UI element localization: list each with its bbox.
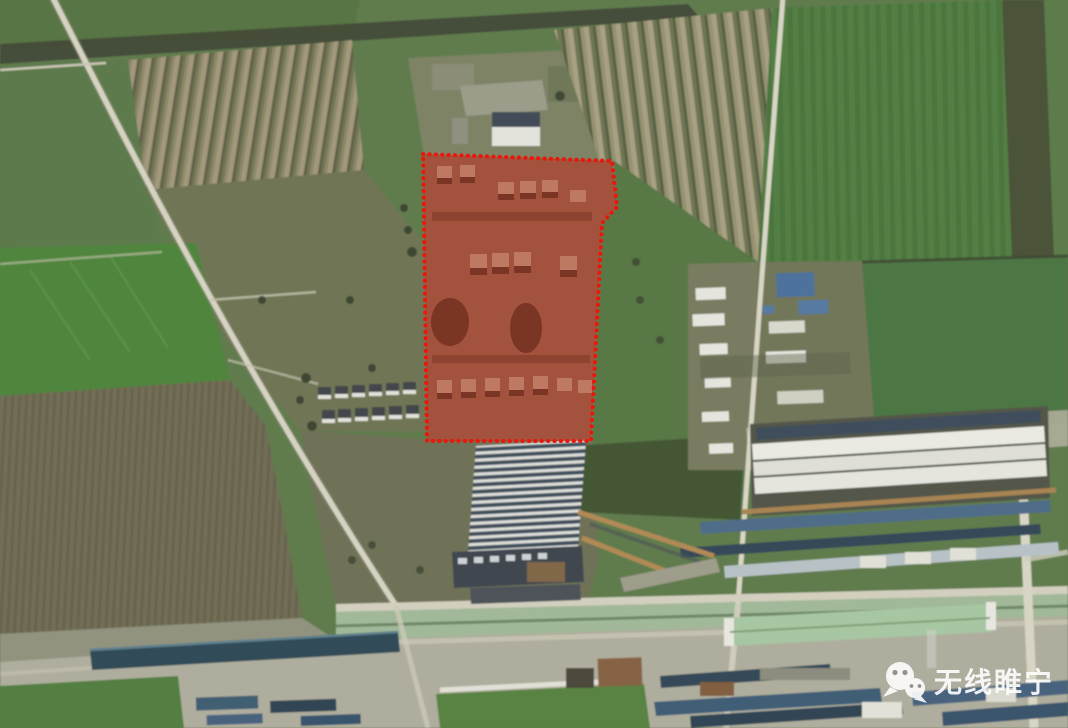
highlight-region [423, 154, 617, 441]
satellite-image: 无线睢宁 [0, 0, 1068, 728]
satellite-map-canvas: 无线睢宁 [0, 0, 1068, 728]
watermark-text: 无线睢宁 [934, 666, 1054, 699]
